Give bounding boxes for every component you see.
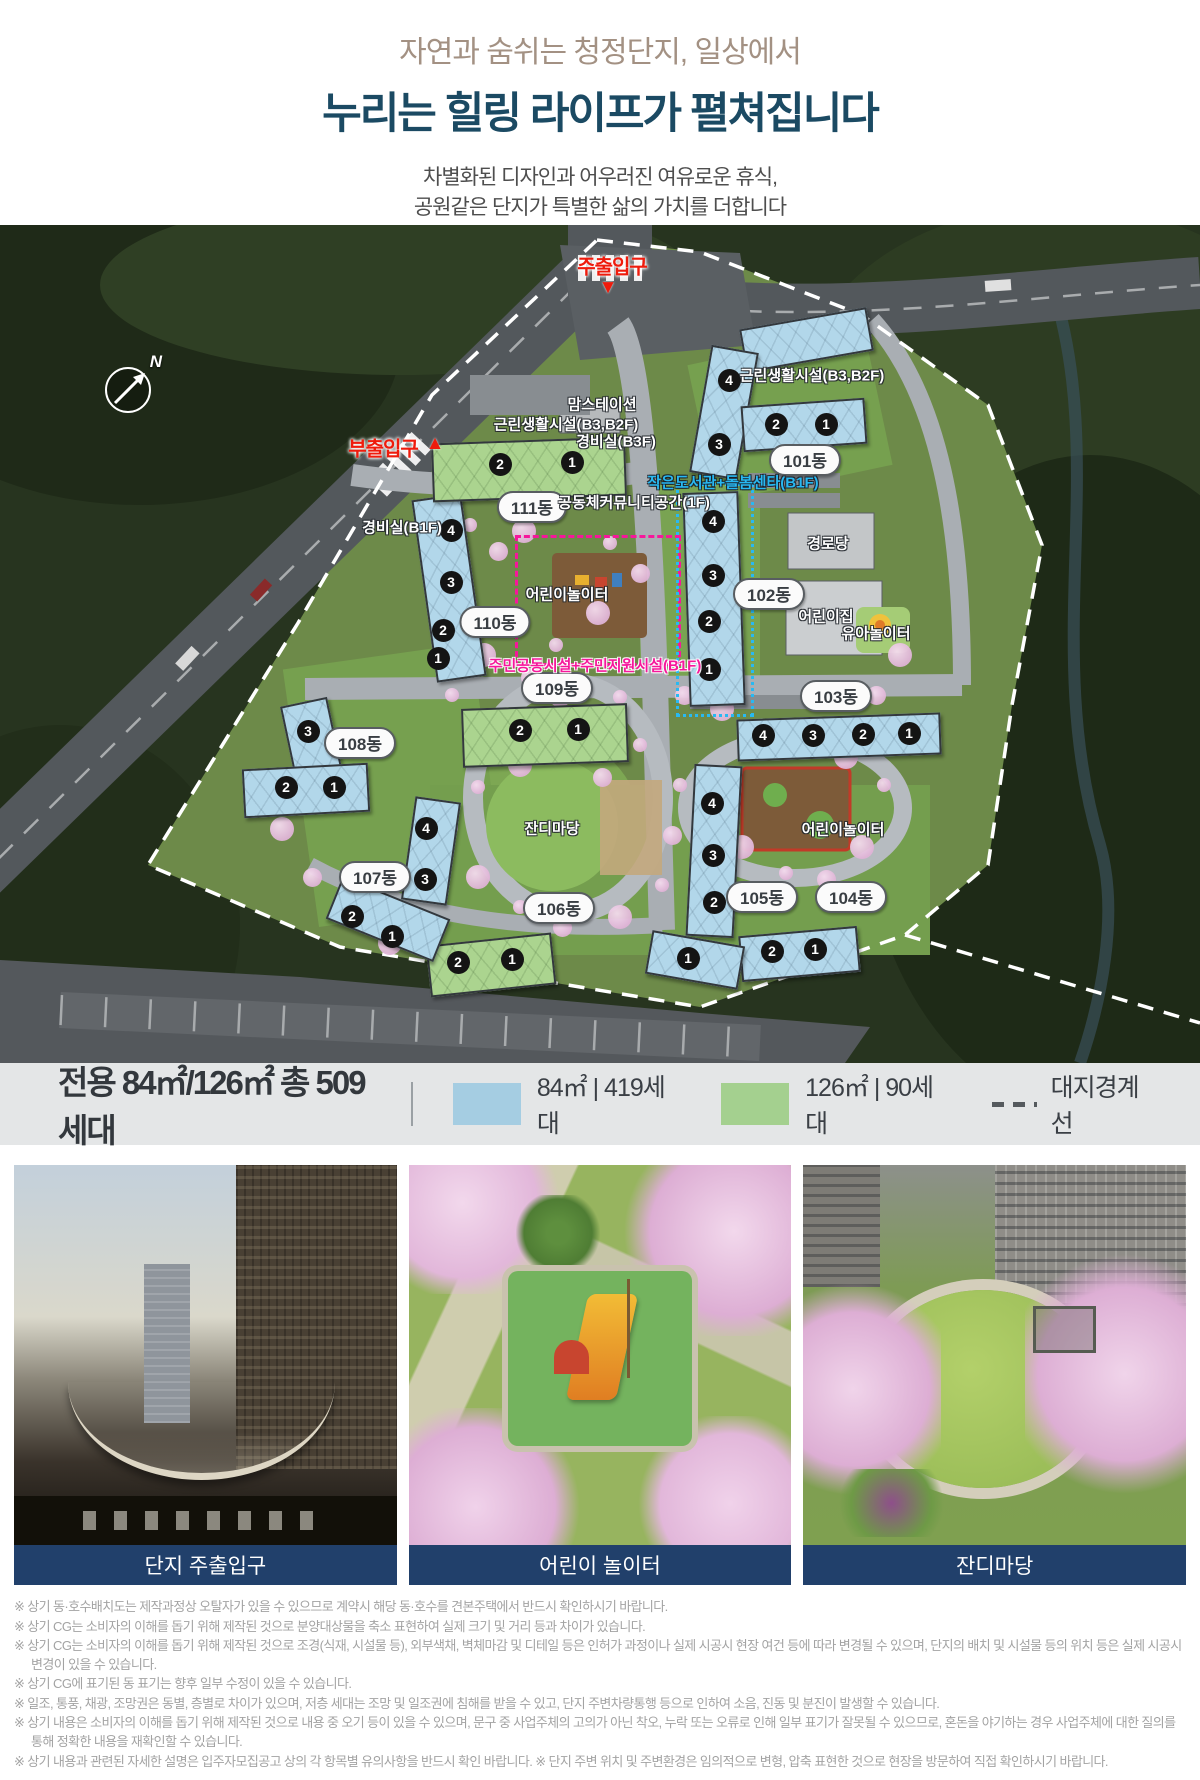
photo-caption-playground: 어린이 놀이터	[409, 1545, 792, 1585]
cherry-blossom-decor	[633, 738, 647, 752]
building-108-unit-badge: 3	[297, 720, 320, 743]
building-105-unit-badge: 1	[677, 947, 700, 970]
map-facility-label: 근린생활시설(B3,B2F)	[740, 365, 884, 386]
photo-building-back-left	[803, 1165, 880, 1287]
map-facility-label: 잔디마당	[524, 818, 579, 839]
building-111-unit-badge: 2	[489, 453, 512, 476]
cherry-blossom-decor	[877, 778, 891, 792]
cherry-blossom-decor	[303, 868, 322, 887]
photo-playground	[409, 1165, 792, 1545]
cherry-blossom-decor	[466, 865, 490, 889]
cherry-blossom-decor	[489, 542, 508, 561]
building-104-unit-badge: 1	[804, 938, 827, 961]
page-title: 누리는 힐링 라이프가 펼쳐집니다	[0, 79, 1200, 141]
legend-bar: 전용 84㎡/126㎡ 총 509세대 84㎡ | 419세대 126㎡ | 9…	[0, 1063, 1200, 1145]
legend-divider	[411, 1082, 413, 1126]
photo-pergola	[1033, 1306, 1096, 1354]
tree-decor	[516, 1195, 600, 1271]
building-107-unit-badge: 1	[381, 925, 404, 948]
disclaimer-line: ※ 상기 CG에 표기된 동 표기는 향후 일부 수정이 있을 수 있습니다.	[14, 1675, 1188, 1694]
cherry-blossom-decor	[608, 905, 632, 929]
photo-caption-main-entrance: 단지 주출입구	[14, 1545, 397, 1585]
disclaimer-line: ※ 상기 내용과 관련된 자세한 설명은 입주자모집공고 상의 각 항목별 유의…	[14, 1753, 1188, 1772]
header-description-line2: 공원같은 단지가 특별한 삶의 가치를 더합니다	[0, 193, 1200, 223]
header-description-line1: 차별화된 디자인과 어우러진 여유로운 휴식,	[0, 163, 1200, 193]
building-104-unit-badge: 2	[761, 940, 784, 963]
cherry-blossom-decor	[663, 826, 682, 845]
disclaimer-line: ※ 상기 내용은 소비자의 이해를 돕기 위해 제작된 것으로 내용 중 오기 …	[14, 1714, 1188, 1751]
building-103-unit-badge: 1	[898, 722, 921, 745]
legend-label-boundary: 대지경계선	[1051, 1068, 1146, 1140]
dong-pill: 109동	[521, 672, 593, 704]
header: 자연과 숨쉬는 청정단지, 일상에서 누리는 힐링 라이프가 펼쳐집니다 차별화…	[0, 0, 1200, 225]
disclaimer-line: ※ 상기 CG는 소비자의 이해를 돕기 위해 제작된 것으로 분양대상물을 축…	[14, 1618, 1188, 1637]
building-102-unit-badge: 4	[702, 510, 725, 533]
building-102-unit-badge: 3	[702, 564, 725, 587]
building-105-unit-badge: 4	[701, 792, 724, 815]
entrance-label: 부출입구	[348, 433, 418, 462]
building-107-unit-badge: 3	[414, 868, 437, 891]
dong-pill: 107동	[339, 861, 411, 893]
cherry-blossom-decor	[779, 866, 793, 880]
building-107-unit-badge: 4	[415, 817, 438, 840]
building-110-unit-badge: 4	[440, 519, 463, 542]
building-107-unit-badge: 2	[341, 905, 364, 928]
building-110-unit-badge: 3	[440, 571, 463, 594]
building-106-unit-badge: 1	[501, 948, 524, 971]
blossom-decor	[1025, 1241, 1186, 1507]
building-103-unit-badge: 4	[752, 724, 775, 747]
building-101-unit-badge: 1	[815, 413, 838, 436]
cherry-blossom-decor	[445, 688, 459, 702]
legend-swatch-84	[453, 1083, 521, 1125]
brochure-page: 자연과 숨쉬는 청정단지, 일상에서 누리는 힐링 라이프가 펼쳐집니다 차별화…	[0, 0, 1200, 1780]
building-108-slab	[242, 763, 370, 819]
cherry-blossom-decor	[613, 690, 627, 704]
photo-play-dome	[554, 1340, 588, 1374]
building-105-unit-badge: 3	[702, 844, 725, 867]
building-102-unit-badge: 2	[698, 610, 721, 633]
header-description: 차별화된 디자인과 어우러진 여유로운 휴식, 공원같은 단지가 특별한 삶의 …	[0, 163, 1200, 224]
photo-crosswalk	[83, 1511, 328, 1530]
entrance-arrow-icon: ▼	[599, 277, 618, 299]
building-105-unit-badge: 2	[703, 891, 726, 914]
building-109-unit-badge: 1	[567, 718, 590, 741]
building-109-slab	[461, 703, 629, 768]
shrub-decor	[834, 1469, 949, 1537]
cherry-blossom-decor	[270, 817, 294, 841]
legend-item-boundary: 대지경계선	[990, 1068, 1146, 1140]
entrance-label: 주출입구	[577, 251, 647, 280]
photo-play-pole	[627, 1279, 630, 1378]
cherry-blossom-decor	[673, 778, 687, 792]
building-110-unit-badge: 2	[432, 619, 455, 642]
photo-card-lawn-yard: 잔디마당	[803, 1165, 1186, 1585]
photo-card-playground: 어린이 놀이터	[409, 1165, 792, 1585]
legend-label-84: 84㎡ | 419세대	[537, 1068, 667, 1140]
photo-main-entrance	[14, 1165, 397, 1545]
legend-swatch-126	[721, 1083, 789, 1125]
map-facility-label: 유아놀이터	[841, 623, 910, 644]
map-facility-label: 작은도서관+돌봄센타(B1F)	[647, 472, 818, 493]
photo-caption-lawn-yard: 잔디마당	[803, 1545, 1186, 1585]
cherry-blossom-decor	[655, 878, 669, 892]
map-facility-label: 주민공동시설+주민지원시설(B1F)	[489, 655, 702, 676]
building-109-unit-badge: 2	[509, 719, 532, 742]
dong-pill: 108동	[324, 727, 396, 759]
legend-label-126: 126㎡ | 90세대	[805, 1068, 935, 1140]
map-facility-label: 공동체커뮤니티공간(1F)	[558, 492, 710, 513]
disclaimer-line: ※ 일조, 통풍, 채광, 조망권은 동별, 층별로 차이가 있으며, 저층 세…	[14, 1695, 1188, 1714]
header-subtitle: 자연과 숨쉬는 청정단지, 일상에서	[0, 27, 1200, 71]
site-plan-map: N 43214321432121432121432132121432121101…	[0, 225, 1200, 1063]
map-facility-label: 맘스테이션	[567, 394, 636, 415]
disclaimer-line: ※ 상기 CG는 소비자의 이해를 돕기 위해 제작된 것으로 조경(식재, 시…	[14, 1637, 1188, 1674]
dong-pill: 111동	[497, 491, 567, 523]
building-108-unit-badge: 1	[323, 776, 346, 799]
boundary-dash-icon	[992, 1102, 1037, 1107]
legend-title: 전용 84㎡/126㎡ 총 509세대	[58, 1056, 377, 1152]
map-facility-label: 경비실(B1F)	[362, 517, 442, 538]
building-101-unit-badge: 3	[708, 433, 731, 456]
entrance-arrow-icon: ▲	[426, 433, 445, 455]
building-103-unit-badge: 3	[802, 724, 825, 747]
photo-lawn-yard	[803, 1165, 1186, 1545]
disclaimer-line: ※ 상기 동·호수배치도는 제작과정상 오탈자가 있을 수 있으므로 계약시 해…	[14, 1598, 1188, 1617]
building-103-unit-badge: 2	[852, 723, 875, 746]
building-101-unit-badge: 4	[718, 369, 741, 392]
dong-pill: 103동	[800, 680, 872, 712]
building-110-unit-badge: 1	[427, 647, 450, 670]
dong-pill: 102동	[733, 578, 805, 610]
photo-strip: 단지 주출입구 어린이 놀이터	[14, 1165, 1186, 1585]
map-facility-label: 어린이놀이터	[526, 584, 609, 605]
building-101-unit-badge: 2	[765, 413, 788, 436]
disclaimer-notes: ※ 상기 동·호수배치도는 제작과정상 오탈자가 있을 수 있으므로 계약시 해…	[14, 1598, 1188, 1772]
cherry-blossom-decor	[888, 643, 912, 667]
dong-pill: 106동	[523, 892, 595, 924]
dong-pill: 104동	[815, 881, 887, 913]
map-facility-label: 경로당	[807, 533, 848, 554]
building-111-unit-badge: 1	[561, 451, 584, 474]
legend-item-126: 126㎡ | 90세대	[721, 1068, 935, 1140]
compass-n-label: N	[150, 352, 162, 372]
building-106-unit-badge: 2	[447, 951, 470, 974]
north-compass: N	[98, 358, 158, 423]
map-facility-label: 경비실(B3F)	[576, 431, 656, 452]
map-facility-label: 어린이놀이터	[802, 819, 885, 840]
photo-card-main-entrance: 단지 주출입구	[14, 1165, 397, 1585]
legend-item-84: 84㎡ | 419세대	[453, 1068, 667, 1140]
building-108-unit-badge: 2	[275, 776, 298, 799]
cherry-blossom-decor	[471, 780, 485, 794]
dong-pill: 110동	[459, 606, 530, 638]
dong-pill: 105동	[726, 881, 798, 913]
cherry-blossom-decor	[593, 768, 612, 787]
